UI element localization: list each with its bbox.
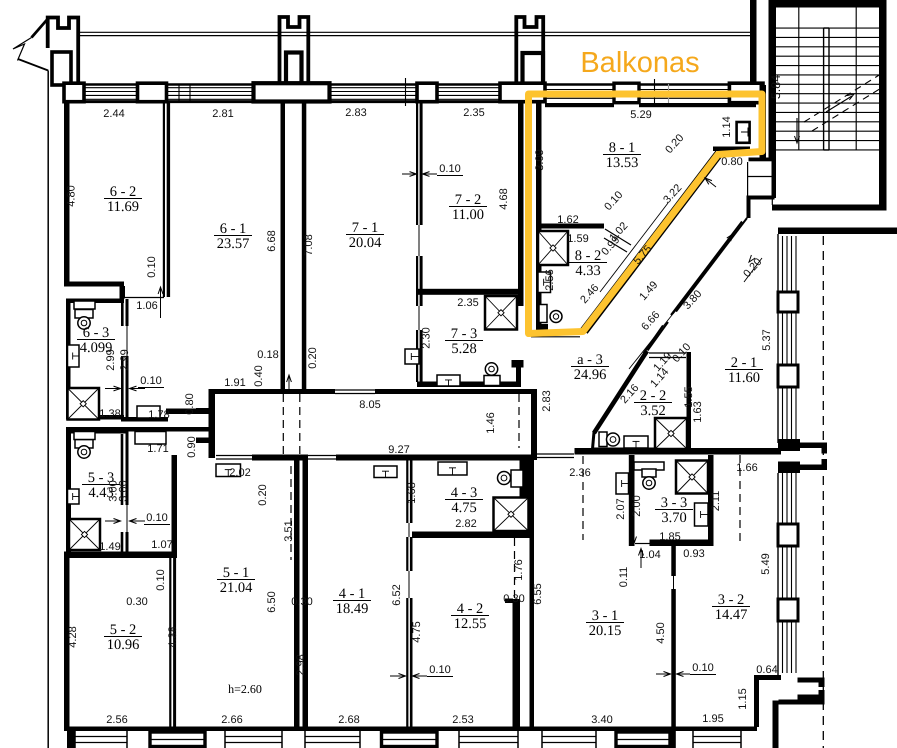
svg-text:1.14: 1.14 bbox=[721, 116, 733, 137]
svg-text:2 - 2: 2 - 2 bbox=[640, 388, 667, 404]
svg-text:0.30: 0.30 bbox=[291, 596, 312, 608]
svg-text:0.10: 0.10 bbox=[146, 256, 158, 277]
svg-text:0.10: 0.10 bbox=[140, 375, 161, 387]
svg-text:4 - 1: 4 - 1 bbox=[339, 586, 366, 602]
svg-text:2.53: 2.53 bbox=[452, 714, 473, 726]
svg-text:1.59: 1.59 bbox=[567, 233, 588, 245]
svg-text:0.18: 0.18 bbox=[257, 349, 278, 361]
svg-text:1.06: 1.06 bbox=[136, 300, 157, 312]
svg-text:1.62: 1.62 bbox=[557, 214, 578, 226]
svg-text:2.36: 2.36 bbox=[569, 467, 590, 479]
svg-text:2.81: 2.81 bbox=[212, 108, 233, 120]
svg-text:5 - 1: 5 - 1 bbox=[223, 565, 250, 581]
svg-text:2.98: 2.98 bbox=[295, 654, 307, 675]
svg-text:0.40: 0.40 bbox=[253, 365, 265, 386]
svg-text:1.15: 1.15 bbox=[737, 688, 749, 709]
svg-text:7 - 2: 7 - 2 bbox=[455, 192, 482, 208]
svg-text:1.91: 1.91 bbox=[224, 377, 245, 389]
svg-text:2.02: 2.02 bbox=[229, 467, 250, 479]
svg-text:2.68: 2.68 bbox=[338, 714, 359, 726]
svg-text:1.95: 1.95 bbox=[702, 713, 723, 725]
svg-text:1.38: 1.38 bbox=[99, 408, 120, 420]
svg-text:2.35: 2.35 bbox=[463, 107, 484, 119]
svg-text:21.04: 21.04 bbox=[220, 580, 253, 596]
svg-text:2.66: 2.66 bbox=[221, 714, 242, 726]
svg-text:1.63: 1.63 bbox=[692, 401, 704, 422]
svg-text:2.07: 2.07 bbox=[615, 498, 627, 519]
svg-text:4.50: 4.50 bbox=[655, 622, 667, 643]
svg-text:Balkonas: Balkonas bbox=[580, 47, 699, 79]
svg-text:3.51: 3.51 bbox=[283, 520, 295, 541]
svg-text:3.40: 3.40 bbox=[591, 714, 612, 726]
svg-text:2 - 1: 2 - 1 bbox=[731, 355, 758, 371]
svg-text:2.35: 2.35 bbox=[457, 297, 478, 309]
svg-text:1.71: 1.71 bbox=[147, 443, 168, 455]
svg-text:2.99: 2.99 bbox=[119, 349, 131, 370]
svg-text:0.20: 0.20 bbox=[307, 347, 319, 368]
svg-text:5.29: 5.29 bbox=[630, 109, 651, 121]
svg-text:5.84: 5.84 bbox=[769, 75, 783, 99]
svg-text:7.08: 7.08 bbox=[303, 234, 315, 255]
svg-text:0.80: 0.80 bbox=[721, 156, 742, 168]
svg-text:7 - 3: 7 - 3 bbox=[451, 326, 478, 342]
svg-text:18.49: 18.49 bbox=[336, 601, 369, 617]
svg-text:10.96: 10.96 bbox=[107, 637, 140, 653]
svg-text:6.68: 6.68 bbox=[266, 230, 278, 251]
svg-text:1.46: 1.46 bbox=[485, 412, 497, 433]
svg-text:3.70: 3.70 bbox=[661, 510, 686, 526]
svg-text:3.00: 3.00 bbox=[118, 480, 130, 501]
svg-text:5.37: 5.37 bbox=[761, 329, 773, 350]
svg-text:8.05: 8.05 bbox=[359, 399, 380, 411]
svg-text:2.83: 2.83 bbox=[541, 390, 553, 411]
svg-text:0.10: 0.10 bbox=[155, 569, 167, 590]
svg-text:6.55: 6.55 bbox=[532, 583, 544, 604]
svg-text:13.53: 13.53 bbox=[606, 155, 639, 171]
svg-text:1.66: 1.66 bbox=[736, 462, 757, 474]
svg-text:0.10: 0.10 bbox=[439, 163, 460, 175]
svg-text:1.85: 1.85 bbox=[659, 531, 680, 543]
svg-text:1.04: 1.04 bbox=[639, 549, 660, 561]
svg-text:1.68: 1.68 bbox=[406, 482, 418, 503]
svg-text:0.90: 0.90 bbox=[186, 436, 198, 457]
svg-text:2.30: 2.30 bbox=[421, 327, 433, 348]
svg-text:6 - 1: 6 - 1 bbox=[220, 221, 247, 237]
svg-text:5.49: 5.49 bbox=[760, 553, 772, 574]
svg-text:6.50: 6.50 bbox=[266, 591, 278, 612]
svg-text:0.30: 0.30 bbox=[126, 596, 147, 608]
svg-text:0.93: 0.93 bbox=[683, 548, 704, 560]
svg-text:1.07: 1.07 bbox=[151, 539, 172, 551]
svg-text:4.75: 4.75 bbox=[451, 500, 476, 516]
svg-text:0.10: 0.10 bbox=[692, 662, 713, 674]
svg-text:4.80: 4.80 bbox=[66, 185, 78, 206]
svg-text:6 - 3: 6 - 3 bbox=[83, 325, 110, 341]
svg-text:11.69: 11.69 bbox=[107, 199, 139, 215]
svg-text:2.83: 2.83 bbox=[345, 107, 366, 119]
svg-text:2.00: 2.00 bbox=[631, 495, 643, 516]
svg-text:4.38: 4.38 bbox=[167, 626, 179, 647]
svg-text:24.96: 24.96 bbox=[574, 367, 607, 383]
svg-text:2.44: 2.44 bbox=[103, 108, 124, 120]
svg-text:0.20: 0.20 bbox=[257, 484, 269, 505]
svg-text:1.78: 1.78 bbox=[148, 409, 169, 421]
svg-text:3.52: 3.52 bbox=[640, 403, 665, 419]
svg-text:4 - 3: 4 - 3 bbox=[451, 485, 478, 501]
svg-text:0.30: 0.30 bbox=[503, 593, 524, 605]
svg-text:23.57: 23.57 bbox=[217, 236, 250, 252]
svg-text:4.68: 4.68 bbox=[498, 188, 510, 209]
svg-text:0.10: 0.10 bbox=[146, 512, 167, 524]
svg-text:20.04: 20.04 bbox=[349, 235, 382, 251]
svg-text:h=2.60: h=2.60 bbox=[228, 682, 262, 696]
svg-text:2.56: 2.56 bbox=[106, 714, 127, 726]
svg-text:5.28: 5.28 bbox=[451, 341, 476, 357]
svg-text:0.10: 0.10 bbox=[429, 664, 450, 676]
svg-text:7 - 1: 7 - 1 bbox=[352, 220, 379, 236]
svg-text:5 - 2: 5 - 2 bbox=[110, 622, 137, 638]
svg-text:2.82: 2.82 bbox=[455, 518, 476, 530]
svg-text:2.11: 2.11 bbox=[710, 491, 722, 512]
svg-text:3 - 1: 3 - 1 bbox=[592, 608, 619, 624]
svg-text:1.76: 1.76 bbox=[513, 559, 525, 580]
svg-text:0.80: 0.80 bbox=[184, 393, 196, 414]
svg-text:11.60: 11.60 bbox=[728, 370, 760, 386]
svg-text:6 - 2: 6 - 2 bbox=[110, 184, 137, 200]
svg-text:14.47: 14.47 bbox=[715, 607, 748, 623]
svg-text:11.00: 11.00 bbox=[452, 207, 484, 223]
svg-text:4 - 2: 4 - 2 bbox=[457, 601, 484, 617]
svg-text:2.99: 2.99 bbox=[105, 349, 117, 370]
svg-text:0.11: 0.11 bbox=[618, 567, 630, 588]
svg-text:8 - 2: 8 - 2 bbox=[575, 248, 602, 264]
svg-text:1.49: 1.49 bbox=[99, 541, 120, 553]
svg-text:6.52: 6.52 bbox=[391, 584, 403, 605]
svg-text:3 - 3: 3 - 3 bbox=[661, 495, 688, 511]
svg-text:4.33: 4.33 bbox=[575, 263, 600, 279]
svg-text:4.75: 4.75 bbox=[411, 621, 423, 642]
svg-text:2.56: 2.56 bbox=[544, 269, 556, 290]
svg-text:a - 3: a - 3 bbox=[577, 352, 603, 368]
svg-text:3 - 2: 3 - 2 bbox=[718, 592, 745, 608]
svg-text:8 - 1: 8 - 1 bbox=[609, 140, 636, 156]
svg-text:3.09: 3.09 bbox=[534, 149, 546, 170]
svg-text:12.55: 12.55 bbox=[454, 616, 487, 632]
svg-text:9.27: 9.27 bbox=[388, 444, 409, 456]
svg-text:0.64: 0.64 bbox=[756, 664, 777, 676]
svg-text:20.15: 20.15 bbox=[589, 623, 622, 639]
svg-text:4.28: 4.28 bbox=[67, 626, 79, 647]
